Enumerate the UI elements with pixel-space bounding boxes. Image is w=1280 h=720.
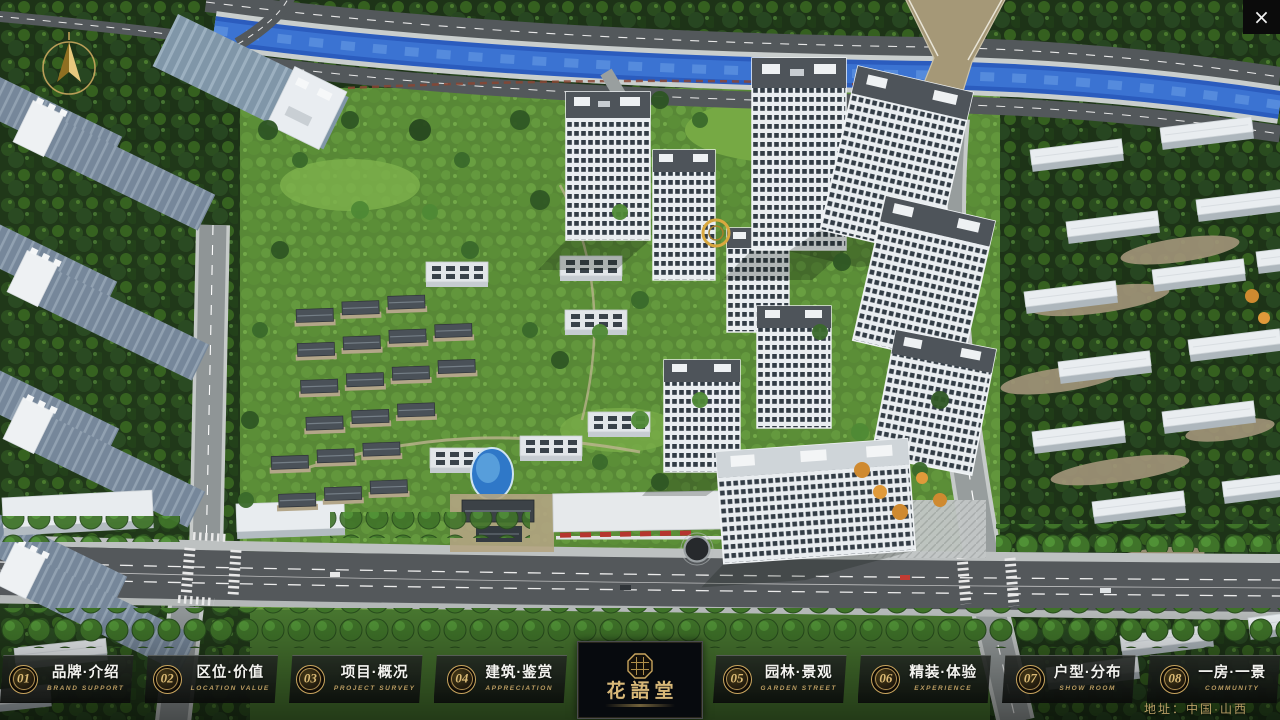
nav-label-zh: 户型·分布	[1054, 666, 1122, 682]
nav-label-zh: 建筑·鉴赏	[485, 666, 553, 682]
nav-label-zh: 区位·价值	[196, 666, 264, 682]
nav-item-floorplan-distribution[interactable]: 07 户型·分布SHOW ROOM	[1002, 655, 1136, 703]
nav-number-badge: 07	[1016, 665, 1045, 694]
nav-item-interior-experience[interactable]: 06 精装·体验EXPERIENCE	[858, 655, 992, 703]
nav-number: 02	[161, 671, 174, 687]
aerial-masterplan-render[interactable]	[0, 0, 1280, 720]
brand-name: 花語堂	[601, 682, 678, 701]
nav-number-badge: 04	[447, 665, 476, 694]
nav-item-project-survey[interactable]: 03 项目·概况PROJECT SURVEY	[289, 655, 423, 703]
nav-item-brand-intro[interactable]: 01 品牌·介绍BRAND SUPPORT	[0, 655, 134, 703]
close-button[interactable]: ×	[1243, 0, 1280, 34]
nav-label-en: APPRECIATION	[485, 685, 553, 692]
nav-number-badge: 08	[1160, 665, 1189, 694]
nav-label-zh: 品牌·介绍	[52, 666, 120, 682]
nav-number: 04	[455, 671, 468, 687]
nav-label-en: GARDEN STREET	[761, 685, 837, 692]
nav-right-group: 05 园林·景观GARDEN STREET 06 精装·体验EXPERIENCE…	[707, 655, 1280, 703]
nav-number-badge: 03	[296, 665, 325, 694]
nav-number: 01	[17, 671, 30, 687]
nav-item-architecture[interactable]: 04 建筑·鉴赏APPRECIATION	[434, 655, 568, 703]
nav-label-en: PROJECT SURVEY	[334, 685, 416, 692]
nav-label-en: LOCATION VALUE	[191, 685, 270, 692]
nav-item-garden-landscape[interactable]: 05 园林·景观GARDEN STREET	[713, 655, 847, 703]
nav-number-badge: 01	[9, 665, 38, 694]
nav-label-zh: 园林·景观	[765, 666, 833, 682]
brand-tagline-rule	[605, 704, 675, 707]
brand-seal-icon	[627, 653, 653, 679]
nav-left-group: 01 品牌·介绍BRAND SUPPORT 02 区位·价值LOCATION V…	[0, 655, 573, 703]
nav-number: 07	[1024, 671, 1037, 687]
nav-number-badge: 06	[871, 665, 900, 694]
nav-label-en: SHOW ROOM	[1059, 685, 1116, 692]
nav-number-badge: 05	[723, 665, 752, 694]
close-icon: ×	[1253, 5, 1270, 29]
nav-label-zh: 一房·一景	[1198, 666, 1266, 682]
nav-label-en: EXPERIENCE	[914, 685, 972, 692]
address-text: 地址：中国·山西	[1144, 700, 1248, 717]
nav-label-zh: 项目·概况	[341, 666, 409, 682]
brand-logo-panel[interactable]: 花語堂	[577, 641, 703, 719]
nav-label-en: COMMUNITY	[1205, 685, 1259, 692]
nav-number: 05	[731, 671, 744, 687]
nav-label-zh: 精装·体验	[909, 666, 977, 682]
nav-number: 08	[1168, 671, 1181, 687]
nav-item-location-value[interactable]: 02 区位·价值LOCATION VALUE	[145, 655, 279, 703]
sales-presentation-window: × 01 品牌·介绍BRAND SUPPORT 02 区位·价值LOCATION…	[0, 0, 1280, 720]
nav-number: 06	[879, 671, 892, 687]
nav-label-en: BRAND SUPPORT	[47, 685, 124, 692]
nav-item-room-view[interactable]: 08 一房·一景COMMUNITY	[1147, 655, 1280, 703]
nav-number-badge: 02	[153, 665, 182, 694]
nav-number: 03	[304, 671, 317, 687]
